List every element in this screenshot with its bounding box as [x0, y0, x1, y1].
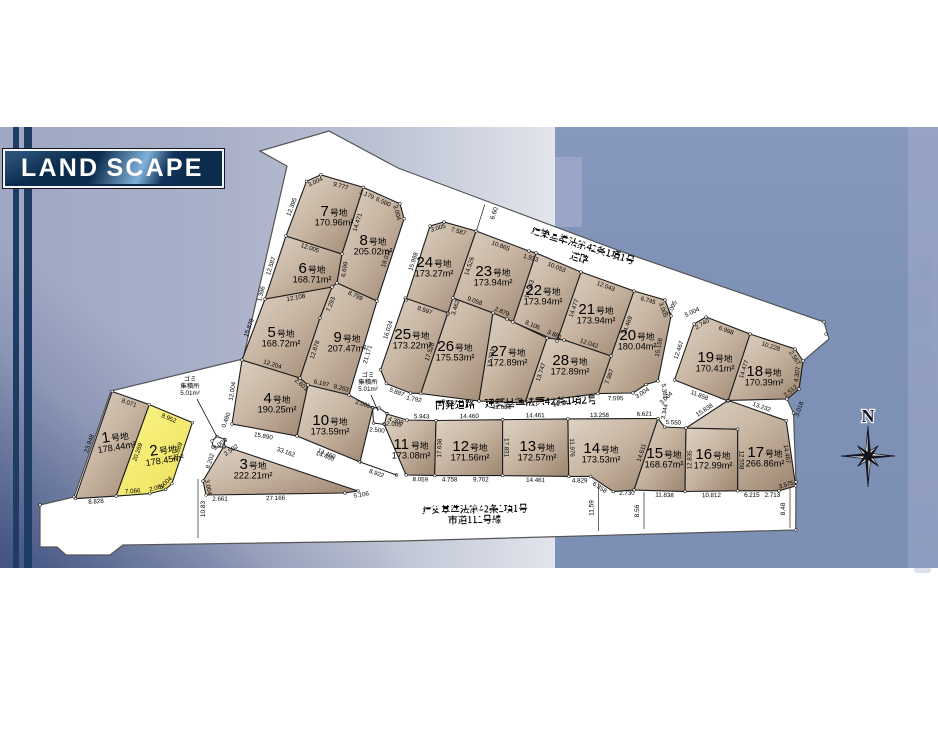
svg-text:173.94m²: 173.94m²	[524, 296, 563, 306]
svg-text:180.04m²: 180.04m²	[618, 341, 657, 351]
svg-text:173.27m²: 173.27m²	[415, 268, 454, 278]
svg-text:17.638: 17.638	[436, 438, 443, 458]
svg-text:168.71m²: 168.71m²	[293, 274, 332, 284]
svg-text:11.59: 11.59	[589, 500, 596, 516]
svg-text:173.94m²: 173.94m²	[474, 277, 513, 287]
svg-text:5.550: 5.550	[665, 419, 681, 427]
svg-text:7.066: 7.066	[125, 487, 142, 495]
svg-text:14.460: 14.460	[460, 413, 480, 420]
svg-text:9.702: 9.702	[473, 477, 489, 484]
svg-text:207.47m²: 207.47m²	[328, 343, 367, 353]
svg-text:173.22m²: 173.22m²	[393, 340, 432, 350]
svg-text:5.01m²: 5.01m²	[180, 390, 200, 397]
svg-text:172.89m²: 172.89m²	[551, 366, 590, 376]
svg-text:7.595: 7.595	[608, 395, 624, 402]
svg-text:8.48: 8.48	[780, 502, 787, 515]
svg-text:190.25m²: 190.25m²	[258, 404, 297, 414]
svg-text:170.96m²: 170.96m²	[315, 217, 354, 227]
svg-text:168.72m²: 168.72m²	[262, 338, 301, 348]
svg-text:168.67m²: 168.67m²	[645, 459, 684, 469]
svg-text:12.835: 12.835	[686, 450, 693, 470]
svg-text:2.500: 2.500	[369, 426, 386, 434]
svg-text:266.86m²: 266.86m²	[746, 458, 785, 468]
svg-text:27.166: 27.166	[266, 495, 286, 502]
svg-text:8.059: 8.059	[412, 476, 428, 483]
svg-text:5.943: 5.943	[414, 413, 430, 420]
svg-text:5.01m²: 5.01m²	[358, 386, 378, 393]
svg-text:11.976: 11.976	[568, 438, 575, 457]
svg-text:3.018: 3.018	[794, 400, 806, 417]
svg-text:172.57m²: 172.57m²	[518, 452, 557, 462]
svg-text:170.39m²: 170.39m²	[745, 377, 784, 387]
svg-text:205.02m²: 205.02m²	[354, 246, 393, 256]
svg-text:6.621: 6.621	[637, 411, 653, 418]
svg-text:222.21m²: 222.21m²	[234, 470, 273, 480]
svg-text:173.94m²: 173.94m²	[577, 315, 616, 325]
svg-text:8.56: 8.56	[634, 504, 641, 517]
svg-text:14.461: 14.461	[526, 412, 546, 419]
svg-text:6.215: 6.215	[744, 492, 760, 499]
svg-text:2.713: 2.713	[765, 492, 781, 499]
svg-text:170.41m²: 170.41m²	[696, 363, 735, 373]
svg-text:173.53m²: 173.53m²	[582, 454, 621, 464]
svg-text:11.838: 11.838	[655, 492, 674, 500]
svg-text:17.831: 17.831	[503, 438, 510, 457]
svg-text:172.89m²: 172.89m²	[489, 357, 528, 367]
svg-text:172.99m²: 172.99m²	[694, 460, 733, 470]
svg-text:10.83: 10.83	[200, 500, 207, 517]
svg-text:N: N	[862, 406, 875, 426]
svg-text:173.08m²: 173.08m²	[392, 450, 431, 460]
svg-text:14.461: 14.461	[526, 477, 546, 484]
svg-text:2.730: 2.730	[619, 490, 635, 497]
svg-text:12.558: 12.558	[738, 451, 745, 470]
svg-text:175.53m²: 175.53m²	[436, 352, 475, 362]
svg-text:2.005: 2.005	[386, 420, 403, 428]
svg-text:13.258: 13.258	[590, 412, 609, 419]
svg-text:173.59m²: 173.59m²	[311, 426, 350, 436]
svg-text:171.56m²: 171.56m²	[451, 452, 490, 462]
svg-text:2.661: 2.661	[212, 496, 228, 503]
svg-text:10.812: 10.812	[702, 492, 722, 499]
svg-text:4.829: 4.829	[572, 477, 588, 484]
svg-text:4.758: 4.758	[442, 477, 458, 484]
svg-text:8.828: 8.828	[88, 498, 104, 506]
